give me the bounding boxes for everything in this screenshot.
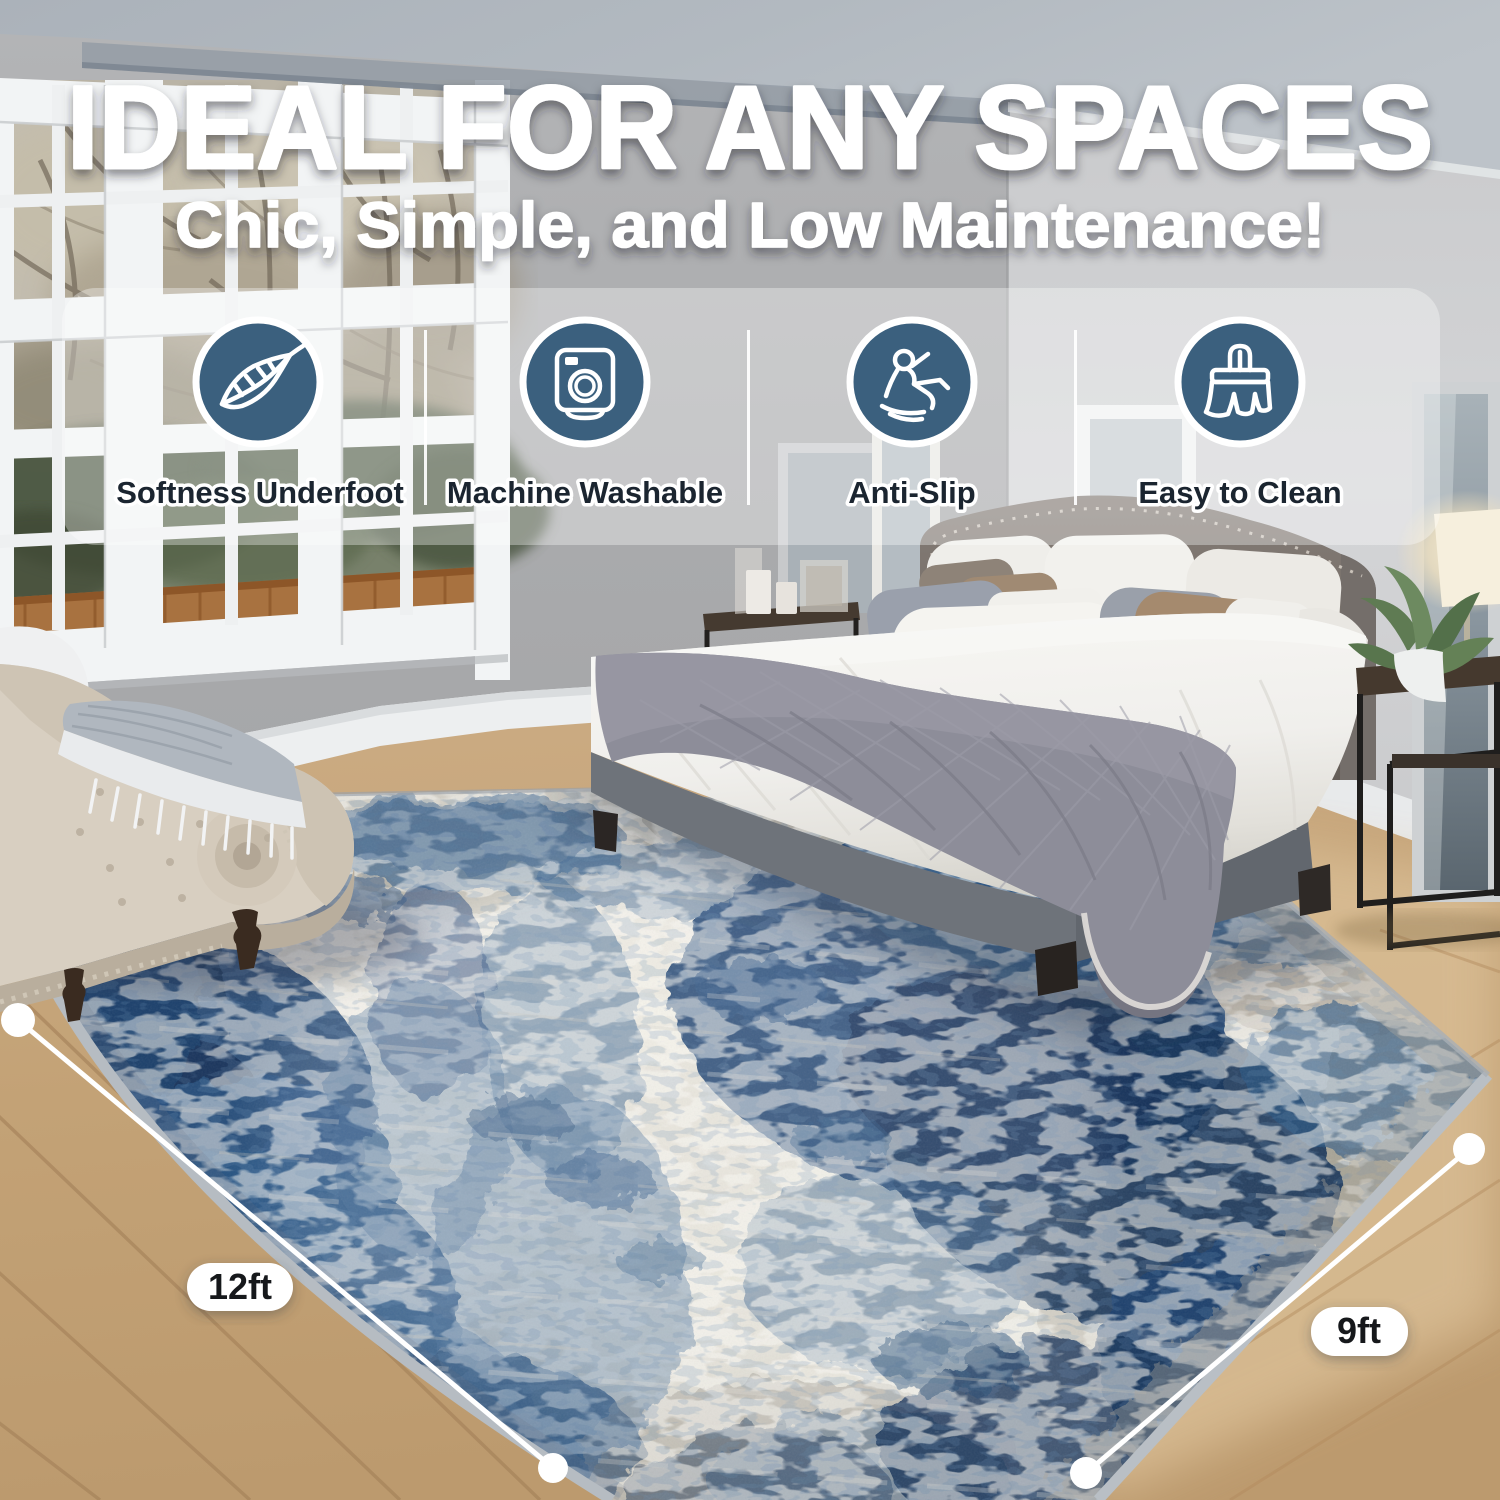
svg-text:Softness Underfoot: Softness Underfoot xyxy=(116,475,404,510)
svg-text:Machine Washable: Machine Washable xyxy=(447,475,723,510)
svg-text:12ft: 12ft xyxy=(208,1266,272,1307)
svg-text:IDEAL FOR ANY SPACES: IDEAL FOR ANY SPACES xyxy=(67,62,1433,194)
svg-text:Chic, Simple, and Low Maintena: Chic, Simple, and Low Maintenance! xyxy=(175,189,1325,261)
svg-text:Anti-Slip: Anti-Slip xyxy=(848,475,975,510)
svg-text:9ft: 9ft xyxy=(1337,1310,1381,1351)
svg-text:Easy to Clean: Easy to Clean xyxy=(1138,475,1341,510)
